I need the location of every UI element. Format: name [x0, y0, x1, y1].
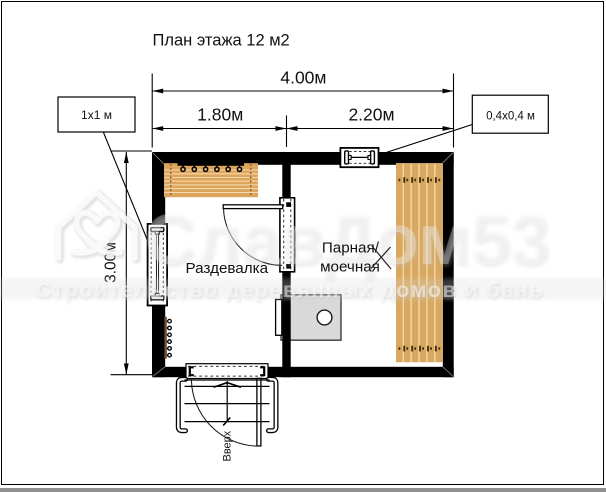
svg-text:Раздевалка: Раздевалка — [186, 260, 269, 277]
svg-text:Парная/: Парная/ — [322, 239, 380, 256]
svg-text:4.00м: 4.00м — [280, 68, 326, 88]
svg-text:1.80м: 1.80м — [197, 105, 243, 125]
svg-text:2.20м: 2.20м — [348, 105, 394, 125]
svg-text:Строительство деревянных домов: Строительство деревянных домов и бань — [36, 278, 544, 302]
svg-text:моечная: моечная — [320, 258, 380, 275]
svg-text:Вверх: Вверх — [222, 430, 234, 461]
svg-text:0,4х0,4 м: 0,4х0,4 м — [486, 111, 535, 123]
svg-text:План этажа 12 м2: План этажа 12 м2 — [153, 32, 290, 50]
svg-text:1х1 м: 1х1 м — [81, 108, 112, 122]
